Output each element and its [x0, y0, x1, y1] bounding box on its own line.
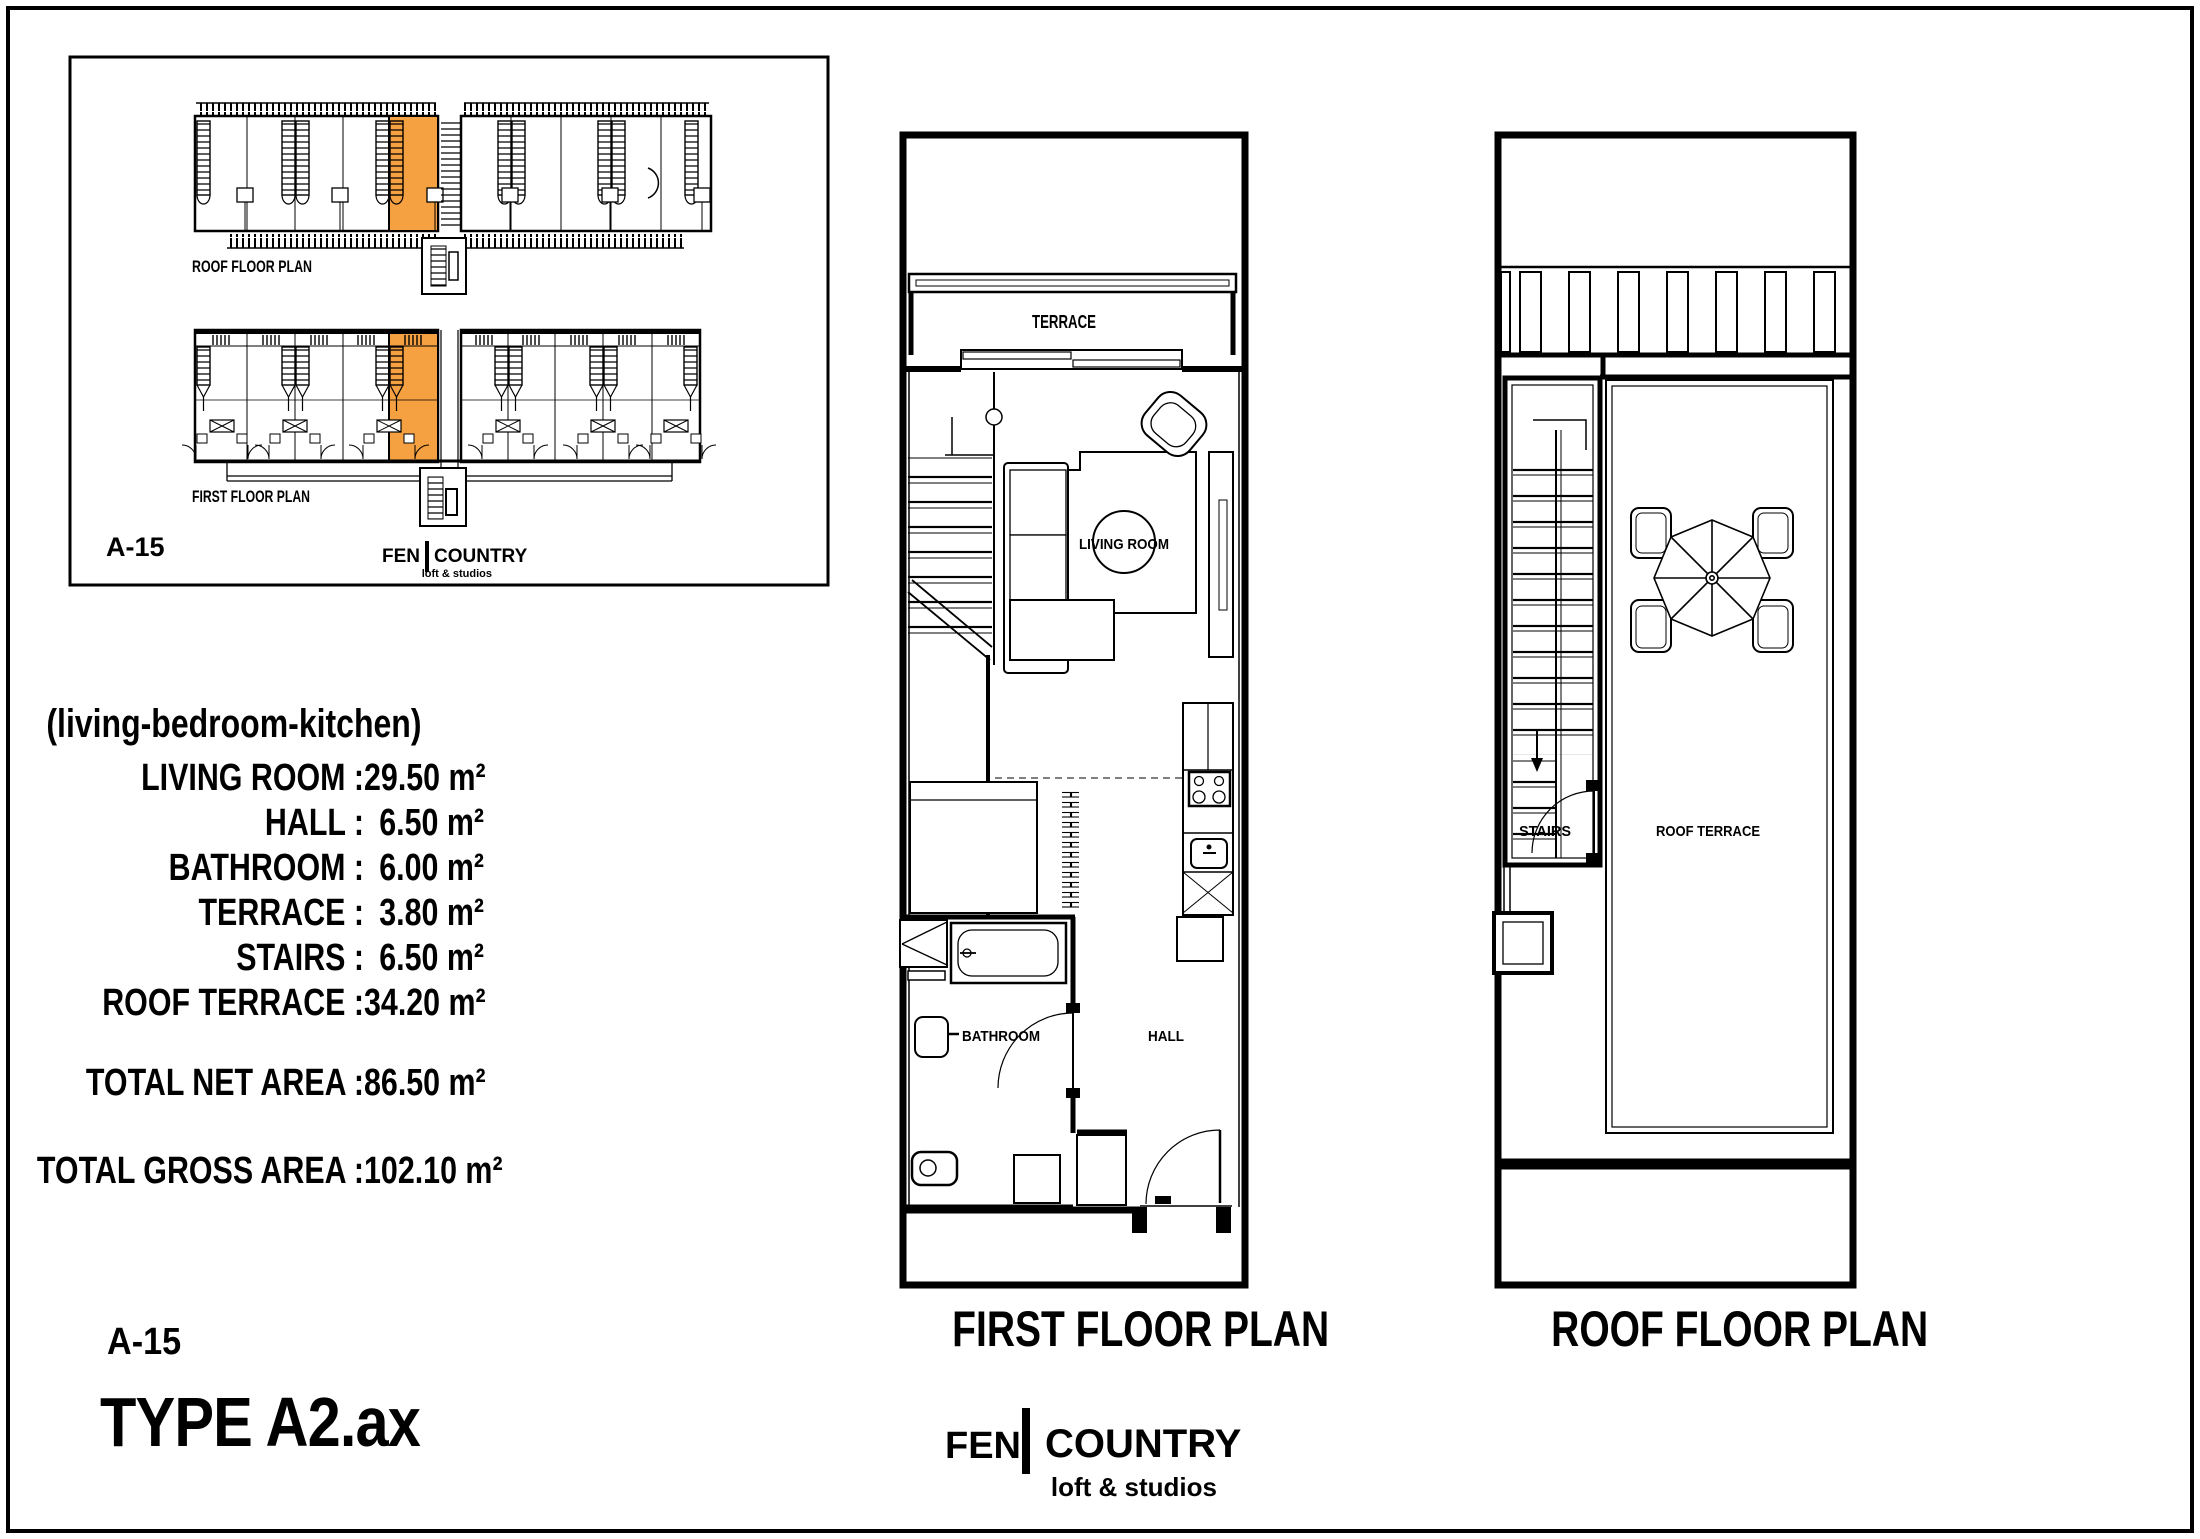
brand-right: COUNTRY: [1045, 1422, 1241, 1467]
area-row-hall: HALL :6.50 m²: [0, 800, 484, 846]
key-unit-code: A-15: [106, 532, 165, 562]
area-subtitle: (living-bedroom-kitchen): [46, 702, 421, 747]
brand-tagline: loft & studios: [945, 1472, 1217, 1503]
area-row-stairs: STAIRS :6.50 m²: [0, 935, 484, 981]
area-row-living: LIVING ROOM :29.50 m²: [0, 755, 484, 801]
svg-text:TERRACE: TERRACE: [1032, 312, 1096, 332]
brand-logo: FEN COUNTRY loft & studios: [945, 1408, 1217, 1500]
svg-text:HALL: HALL: [1148, 1028, 1184, 1045]
first-floor-plan-drawing: TERRACE: [890, 125, 1260, 1305]
floor-plan-sheet: ROOF FLOOR PLAN: [0, 0, 2200, 1539]
roof-floor-plan-drawing: STAIRS ROOF TERRACE: [1488, 125, 1868, 1305]
unit-type-title: TYPE A2.ax: [100, 1382, 420, 1462]
roof-umbrella-table: [1654, 520, 1770, 636]
svg-text:FEN: FEN: [382, 546, 420, 567]
key-first-plan-label: FIRST FLOOR PLAN: [192, 487, 310, 506]
key-roof-plan-label: ROOF FLOOR PLAN: [192, 257, 312, 276]
first-floor-caption: FIRST FLOOR PLAN: [899, 1300, 1249, 1358]
area-row-total-net: TOTAL NET AREA :86.50 m²: [0, 1060, 484, 1106]
brand-left: FEN: [945, 1425, 1021, 1468]
svg-text:COUNTRY: COUNTRY: [434, 546, 528, 567]
svg-text:STAIRS: STAIRS: [1519, 823, 1571, 840]
area-row-bathroom: BATHROOM :6.00 m²: [0, 845, 484, 891]
svg-text:BATHROOM: BATHROOM: [962, 1028, 1040, 1045]
key-plan-drawing: ROOF FLOOR PLAN: [60, 48, 838, 596]
svg-text:LIVING ROOM: LIVING ROOM: [1079, 536, 1169, 553]
roof-floor-caption: ROOF FLOOR PLAN: [1498, 1300, 1857, 1358]
area-row-roof-terrace: ROOF TERRACE :34.20 m²: [0, 980, 484, 1026]
brand-divider: [1022, 1408, 1030, 1474]
unit-code: A-15: [107, 1321, 181, 1364]
area-row-terrace: TERRACE :3.80 m²: [0, 890, 484, 936]
area-row-total-gross: TOTAL GROSS AREA :102.10 m²: [0, 1148, 484, 1194]
svg-text:ROOF TERRACE: ROOF TERRACE: [1656, 823, 1760, 840]
svg-text:loft & studios: loft & studios: [422, 568, 492, 580]
